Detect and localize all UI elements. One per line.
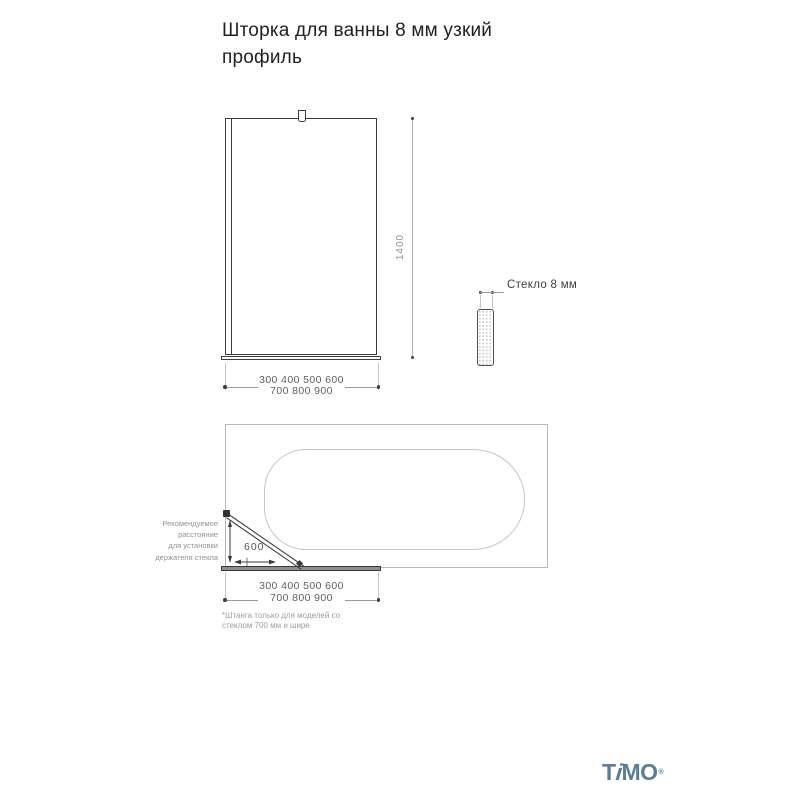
holder-note-line: Рекомендуемое: [136, 518, 218, 529]
wall-holder-mount: [223, 510, 230, 517]
holder-note-line: расстояние: [136, 529, 218, 540]
glass-panel-outline: [225, 118, 377, 355]
glass-thickness-label: Стекло 8 мм: [507, 279, 577, 291]
width-options-line1: 300 400 500 600: [225, 581, 378, 593]
bar-footnote-line: *Штанга только для моделей со: [222, 611, 340, 621]
dim-dot: [411, 356, 415, 360]
width-options-line2: 700 800 900: [225, 386, 378, 398]
front-width-options: 300 400 500 600 700 800 900: [225, 375, 378, 398]
width-options-line2: 700 800 900: [225, 593, 378, 605]
holder-note: Рекомендуемое расстояние для установки д…: [136, 518, 218, 563]
page-title: Шторка для ванны 8 мм узкий профиль: [222, 17, 507, 71]
glass-leader-line: [480, 292, 504, 293]
plan-width-options: 300 400 500 600 700 800 900: [225, 581, 378, 604]
dim-dot: [411, 117, 415, 121]
timo-logo: TiMO®: [602, 760, 664, 785]
logo-letter-t: T: [602, 760, 616, 784]
bar-footnote: *Штанга только для моделей со стеклом 70…: [222, 611, 340, 631]
glass-section-hatched: [477, 309, 494, 366]
extension-line: [480, 295, 481, 308]
height-dimension-line: [412, 119, 413, 357]
logo-letters-mo: MO: [621, 760, 657, 784]
bar-footnote-line: стеклом 700 мм и шире: [222, 621, 340, 631]
holder-note-line: держателя стекла: [136, 552, 218, 563]
narrow-profile-edge: [231, 119, 232, 354]
bottom-profile-bar: [221, 356, 381, 361]
extension-line: [492, 295, 493, 308]
glass-holder-clip-icon: [298, 110, 306, 122]
height-dimension-label: 1400: [393, 222, 407, 272]
product-spec-sheet: Шторка для ванны 8 мм узкий профиль 1400…: [0, 0, 800, 800]
holder-distance-label: 600: [244, 541, 265, 553]
holder-note-line: для установки: [136, 540, 218, 551]
registered-trademark-icon: ®: [659, 761, 664, 785]
